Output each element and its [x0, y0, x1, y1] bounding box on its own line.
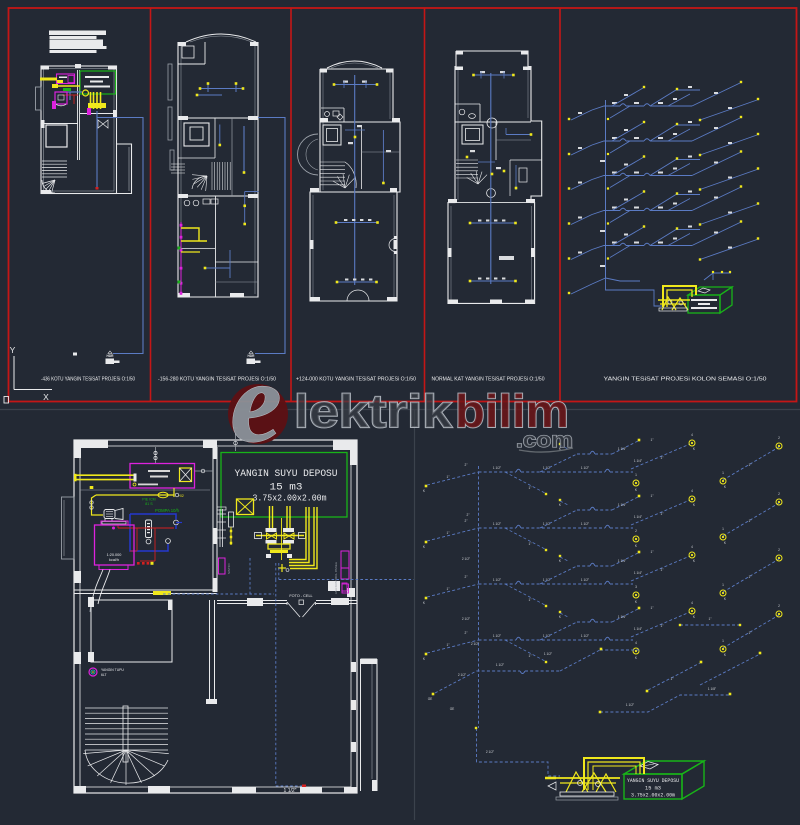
svg-text:1 1/2": 1 1/2" — [543, 578, 551, 582]
svg-text:1 1/2": 1 1/2" — [493, 578, 501, 582]
svg-text:4: 4 — [691, 489, 693, 493]
svg-text:1:20.000: 1:20.000 — [107, 553, 122, 557]
svg-text:X: X — [43, 392, 49, 402]
svg-text:YANGIN TESiSAT PROJESi KOLON S: YANGIN TESiSAT PROJESi KOLON SEMASI O:1/… — [604, 377, 767, 383]
svg-text:2 1/2": 2 1/2" — [462, 557, 470, 561]
svg-text:Y: Y — [10, 345, 16, 355]
svg-text:+124-000 KOTU YANGIN TESiSAT P: +124-000 KOTU YANGIN TESiSAT PROJESi O:1… — [296, 377, 416, 383]
svg-text:3.75x2.00x2.00m: 3.75x2.00x2.00m — [253, 493, 327, 504]
svg-text:1 1/4": 1 1/4" — [618, 503, 626, 507]
svg-text:.com: .com — [516, 429, 573, 452]
svg-text:4: 4 — [691, 433, 693, 437]
svg-text:2": 2" — [465, 519, 468, 523]
svg-text:2: 2 — [778, 492, 780, 496]
svg-text:4: 4 — [635, 641, 637, 645]
svg-text:FOTO - CELL: FOTO - CELL — [289, 594, 312, 598]
svg-text:1: 1 — [722, 527, 724, 531]
svg-text:1 1/2": 1 1/2" — [284, 788, 297, 794]
svg-text:NORMAL KAT YANGIN TESiSAT PROJ: NORMAL KAT YANGIN TESiSAT PROJESi O:1/50 — [432, 377, 545, 383]
svg-text:4: 4 — [691, 601, 693, 605]
svg-text:POMPA 10/h: POMPA 10/h — [155, 508, 180, 513]
svg-text:1": 1" — [661, 624, 664, 628]
svg-text:-436 KOTU YANGIN TESiSAT PROJE: -436 KOTU YANGIN TESiSAT PROJESi O:1/50 — [41, 377, 135, 383]
svg-text:1": 1" — [749, 463, 752, 467]
svg-text:1 1/8": 1 1/8" — [708, 687, 716, 691]
svg-text:YANGIN TUPU: YANGIN TUPU — [101, 668, 124, 672]
svg-text:2": 2" — [465, 575, 468, 579]
svg-text:2: 2 — [635, 529, 637, 533]
svg-text:YANGIN SUYU DEPOSU: YANGIN SUYU DEPOSU — [627, 778, 679, 784]
svg-text:1 1/2": 1 1/2" — [581, 578, 589, 582]
svg-text:2 1/2": 2 1/2" — [471, 642, 479, 646]
svg-text:2": 2" — [465, 631, 468, 635]
svg-text:1": 1" — [529, 654, 532, 658]
svg-text:1": 1" — [529, 542, 532, 546]
svg-text:GE: GE — [428, 697, 433, 701]
svg-text:1": 1" — [749, 575, 752, 579]
svg-text:1 1/2": 1 1/2" — [543, 522, 551, 526]
svg-text:3.75x2.00x2.00m: 3.75x2.00x2.00m — [631, 793, 675, 799]
svg-text:1": 1" — [651, 494, 654, 498]
svg-text:1 1/2": 1 1/2" — [581, 522, 589, 526]
svg-text:1 1/2": 1 1/2" — [626, 703, 634, 707]
svg-text:81 S: 81 S — [145, 502, 153, 506]
svg-text:1": 1" — [661, 456, 664, 460]
svg-text:1 1/2": 1 1/2" — [543, 634, 551, 638]
svg-text:1 1/2": 1 1/2" — [496, 663, 504, 667]
svg-text:HDR: HDR — [107, 354, 115, 358]
svg-text:YANGIN SUYU DEPOSU: YANGIN SUYU DEPOSU — [235, 468, 338, 480]
svg-text:1": 1" — [529, 598, 532, 602]
svg-text:1": 1" — [447, 643, 450, 647]
svg-text:2 1/2": 2 1/2" — [458, 673, 466, 677]
svg-text:1: 1 — [635, 473, 637, 477]
svg-text:2 1/2": 2 1/2" — [462, 617, 470, 621]
svg-text:2: 2 — [778, 548, 780, 552]
svg-text:e: e — [230, 339, 282, 467]
svg-text:1 1/2": 1 1/2" — [544, 652, 552, 656]
svg-text:2: 2 — [778, 436, 780, 440]
svg-text:1 1/2": 1 1/2" — [581, 466, 589, 470]
svg-text:2": 2" — [465, 463, 468, 467]
svg-text:kcal/h: kcal/h — [109, 558, 119, 562]
svg-text:1": 1" — [651, 550, 654, 554]
svg-text:1 1/2": 1 1/2" — [493, 466, 501, 470]
svg-text:1": 1" — [709, 617, 712, 621]
svg-text:GE: GE — [450, 707, 455, 711]
svg-text:1": 1" — [529, 486, 532, 490]
svg-text:6LT: 6LT — [101, 673, 107, 677]
svg-text:2 1/2": 2 1/2" — [486, 750, 494, 754]
svg-text:1: 1 — [722, 583, 724, 587]
svg-text:1": 1" — [447, 475, 450, 479]
svg-text:1": 1" — [447, 587, 450, 591]
svg-text:1": 1" — [651, 438, 654, 442]
svg-text:1 1/2": 1 1/2" — [543, 466, 551, 470]
svg-text:1 1/4": 1 1/4" — [634, 459, 642, 463]
svg-text:15 m3: 15 m3 — [645, 786, 661, 792]
svg-text:1": 1" — [447, 531, 450, 535]
svg-text:1 1/2": 1 1/2" — [581, 634, 589, 638]
svg-text:1 1/4": 1 1/4" — [634, 571, 642, 575]
svg-text:1": 1" — [661, 568, 664, 572]
svg-text:1: 1 — [722, 471, 724, 475]
svg-text:1 1/2": 1 1/2" — [493, 634, 501, 638]
svg-text:1": 1" — [671, 677, 674, 681]
svg-text:lektrik: lektrik — [294, 385, 452, 437]
svg-text:1": 1" — [661, 512, 664, 516]
svg-text:4: 4 — [691, 545, 693, 549]
svg-text:3: 3 — [635, 585, 637, 589]
svg-text:2: 2 — [778, 604, 780, 608]
svg-text:SISTICI: SISTICI — [227, 563, 231, 574]
svg-text:1": 1" — [749, 631, 752, 635]
svg-text:1 1/4": 1 1/4" — [634, 627, 642, 631]
svg-text:1 1/4": 1 1/4" — [618, 615, 626, 619]
svg-text:PIE ICM: PIE ICM — [142, 498, 155, 502]
svg-text:1: 1 — [722, 639, 724, 643]
svg-text:1 1/2": 1 1/2" — [493, 522, 501, 526]
svg-text:1": 1" — [651, 606, 654, 610]
svg-text:1 1/4": 1 1/4" — [618, 559, 626, 563]
svg-text:1 1/4": 1 1/4" — [618, 447, 626, 451]
svg-text:1": 1" — [749, 519, 752, 523]
svg-text:2": 2" — [467, 513, 470, 517]
svg-text:ANA KONTROL PANELi: ANA KONTROL PANELi — [334, 561, 338, 594]
svg-text:1 1/4": 1 1/4" — [634, 515, 642, 519]
